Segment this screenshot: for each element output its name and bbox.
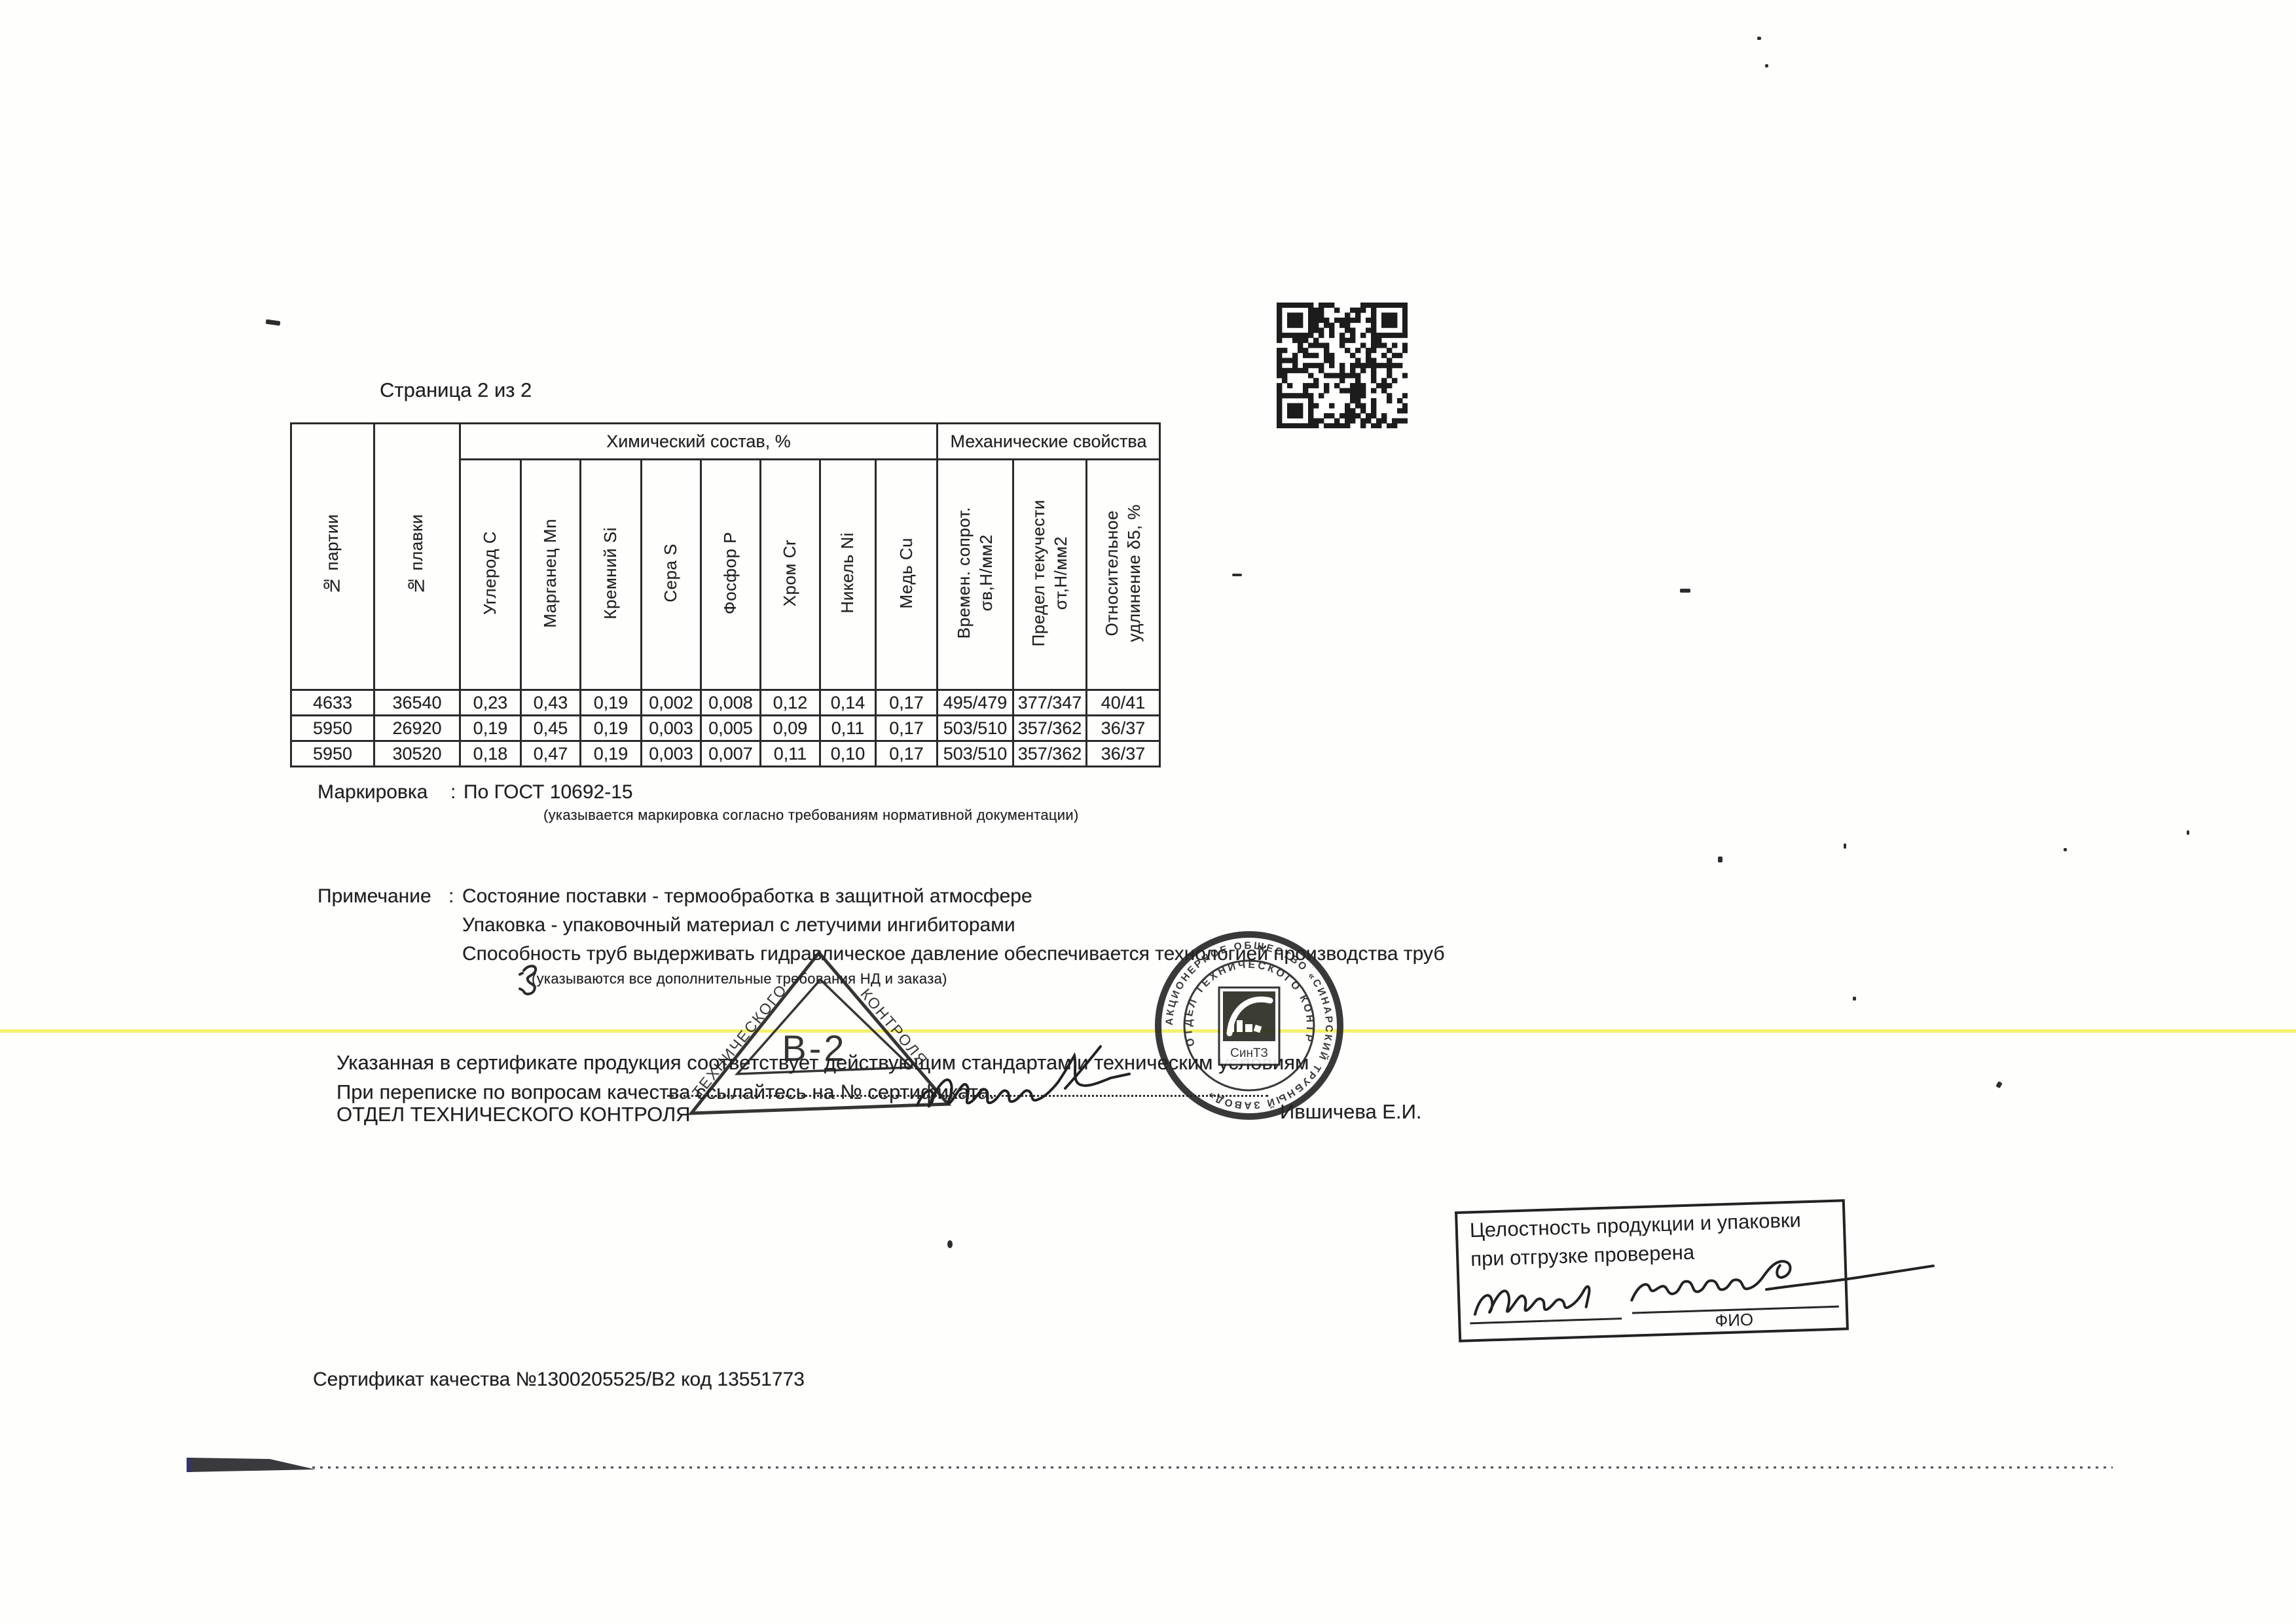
column-header: Углерод С bbox=[460, 460, 521, 690]
scan-streak bbox=[0, 1029, 2296, 1033]
shipping-signatures bbox=[1459, 1250, 1946, 1337]
column-header: Предел текучести σт,Н/мм2 bbox=[1013, 460, 1087, 690]
marking-label: Маркировка bbox=[318, 781, 428, 803]
triangle-stamp-left-text: ТЕХНИЧЕСКОГО bbox=[689, 980, 791, 1101]
table-cell: 5950 bbox=[291, 741, 374, 767]
scan-speck bbox=[2064, 848, 2067, 851]
table-cell: 377/347 bbox=[1013, 690, 1087, 716]
scan-speck bbox=[947, 1240, 953, 1248]
table-cell: 5950 bbox=[291, 716, 374, 741]
column-header: № плавки bbox=[374, 424, 460, 690]
scan-speck bbox=[1853, 997, 1856, 1001]
scan-speck bbox=[1718, 857, 1722, 862]
page-number-label: Страница 2 из 2 bbox=[380, 378, 532, 402]
table-cell: 40/41 bbox=[1087, 690, 1160, 716]
column-header: Времен. сопрот. σв,Н/мм2 bbox=[938, 460, 1013, 690]
column-header: Кремний Si bbox=[581, 460, 642, 690]
table-cell: 0,19 bbox=[581, 741, 642, 767]
scan-speck bbox=[1765, 64, 1768, 67]
round-stamp: АКЦИОНЕРНОЕ ОБЩЕСТВО «СИНАРСКИЙ ТРУБНЫЙ … bbox=[1150, 927, 1349, 1126]
group-header-mechanical: Механические свойства bbox=[938, 424, 1160, 460]
table-row: 5950305200,180,470,190,0030,0070,110,100… bbox=[291, 741, 1160, 767]
shipping-stamp-box: Целостность продукции и упаковки при отг… bbox=[1455, 1199, 1849, 1342]
table-cell: 0,11 bbox=[820, 716, 876, 741]
table-cell: 0,23 bbox=[460, 690, 521, 716]
table-cell: 357/362 bbox=[1013, 716, 1087, 741]
scan-speck bbox=[1844, 843, 1846, 849]
scan-speck bbox=[2187, 830, 2189, 835]
table-row: 4633365400,230,430,190,0020,0080,120,140… bbox=[291, 690, 1160, 716]
table-cell: 0,14 bbox=[820, 690, 876, 716]
column-header: Сера S bbox=[642, 460, 701, 690]
table-cell: 26920 bbox=[374, 716, 460, 741]
column-header: Фосфор Р bbox=[701, 460, 761, 690]
marking-value: По ГОСТ 10692-15 bbox=[464, 781, 633, 803]
bottom-scan-bar bbox=[185, 1454, 2116, 1480]
table-cell: 0,47 bbox=[521, 741, 581, 767]
triangle-stamp-center-text: В-2 bbox=[782, 1027, 847, 1069]
table-cell: 0,008 bbox=[701, 690, 761, 716]
table-cell: 0,43 bbox=[521, 690, 581, 716]
table-cell: 36540 bbox=[374, 690, 460, 716]
certificate-number: Сертификат качества №1300205525/В2 код 1… bbox=[313, 1369, 805, 1391]
table-cell: 30520 bbox=[374, 741, 460, 767]
table-cell: 503/510 bbox=[938, 741, 1013, 767]
scanned-certificate-page: Страница 2 из 2 № партии№ плавкиХимическ… bbox=[0, 0, 2296, 1624]
table-cell: 0,005 bbox=[701, 716, 761, 741]
table-cell: 0,19 bbox=[581, 690, 642, 716]
note-label: Примечание bbox=[318, 885, 431, 908]
table-cell: 0,007 bbox=[701, 741, 761, 767]
table-cell: 503/510 bbox=[938, 716, 1013, 741]
column-header: № партии bbox=[291, 424, 374, 690]
column-header: Относительное удлинение δ5, % bbox=[1087, 460, 1160, 690]
table-cell: 0,17 bbox=[876, 741, 938, 767]
table-cell: 0,19 bbox=[581, 716, 642, 741]
note-line: Состояние поставки - термообработка в за… bbox=[462, 885, 1032, 908]
table-cell: 495/479 bbox=[938, 690, 1013, 716]
group-header-chemical: Химический состав, % bbox=[460, 424, 938, 460]
table-cell: 0,11 bbox=[761, 741, 820, 767]
table-cell: 357/362 bbox=[1013, 741, 1087, 767]
department-label: ОТДЕЛ ТЕХНИЧЕСКОГО КОНТРОЛЯ bbox=[337, 1103, 691, 1126]
table-cell: 0,002 bbox=[642, 690, 701, 716]
shipping-stamp-line1: Целостность продукции и упаковки bbox=[1469, 1208, 1801, 1242]
note-line: Упаковка - упаковочный материал с летучи… bbox=[462, 914, 1015, 936]
table-cell: 0,45 bbox=[521, 716, 581, 741]
scan-speck bbox=[1680, 589, 1690, 593]
ink-mark bbox=[515, 961, 545, 999]
note-separator: : bbox=[448, 885, 454, 908]
column-header: Медь Cu bbox=[876, 460, 938, 690]
table-cell: 0,19 bbox=[460, 716, 521, 741]
chemical-mechanical-table: № партии№ плавкиХимический состав, %Меха… bbox=[290, 422, 1161, 767]
triangle-stamp: ТЕХНИЧЕСКОГО КОНТРОЛЯ В-2 bbox=[674, 944, 962, 1128]
table-cell: 0,10 bbox=[820, 741, 876, 767]
table-cell: 0,003 bbox=[642, 741, 701, 767]
qr-code-icon bbox=[1277, 303, 1408, 428]
table-cell: 0,003 bbox=[642, 716, 701, 741]
round-stamp-logo-text: СинТЗ bbox=[1230, 1046, 1268, 1060]
marking-caption: (указывается маркировка согласно требова… bbox=[543, 807, 1079, 824]
scan-speck bbox=[1757, 37, 1761, 40]
column-header: Никель Ni bbox=[820, 460, 876, 690]
table-row: 5950269200,190,450,190,0030,0050,090,110… bbox=[291, 716, 1160, 741]
table-cell: 36/37 bbox=[1087, 741, 1160, 767]
table-cell: 4633 bbox=[291, 690, 374, 716]
table-cell: 0,12 bbox=[761, 690, 820, 716]
scan-speck bbox=[266, 320, 281, 326]
scan-speck bbox=[1995, 1081, 2003, 1088]
table-cell: 0,17 bbox=[876, 716, 938, 741]
table-cell: 0,18 bbox=[460, 741, 521, 767]
marking-separator: : bbox=[450, 781, 456, 803]
table-cell: 0,17 bbox=[876, 690, 938, 716]
table-cell: 36/37 bbox=[1087, 716, 1160, 741]
column-header: Марганец Mn bbox=[521, 460, 581, 690]
scan-speck bbox=[1232, 574, 1242, 576]
column-header: Хром Cr bbox=[761, 460, 820, 690]
table-cell: 0,09 bbox=[761, 716, 820, 741]
